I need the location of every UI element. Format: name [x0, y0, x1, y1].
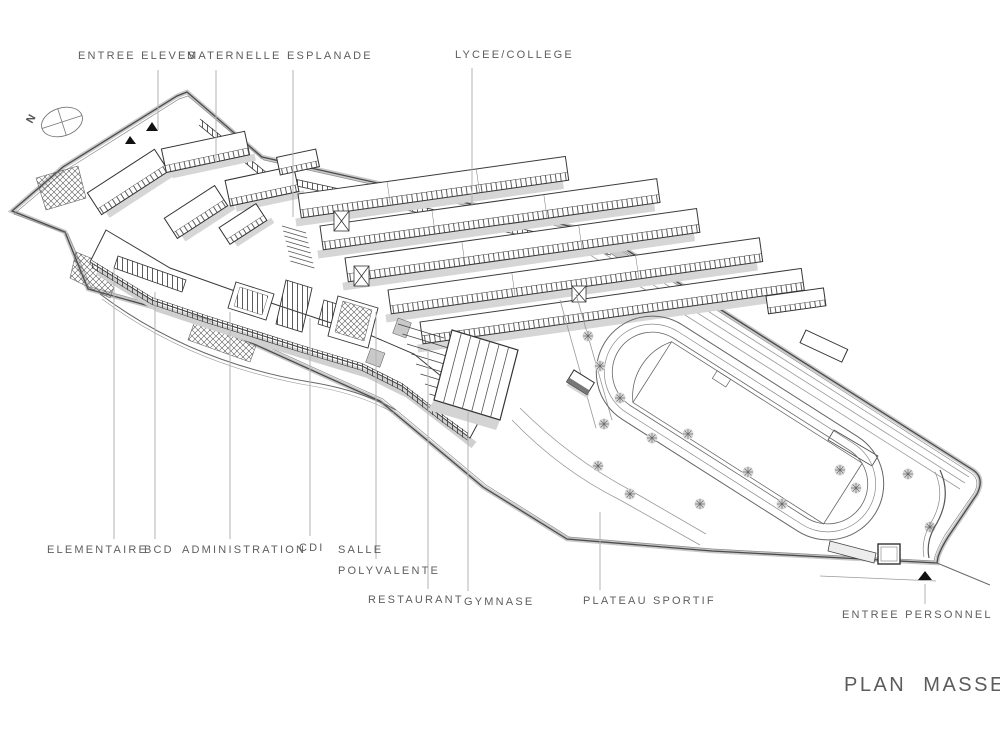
- esplanade-steps: [282, 226, 314, 268]
- staff-entrance-arrow-icon: [918, 571, 932, 580]
- label-elementaire: ELEMENTAIRE: [47, 544, 148, 556]
- tree-icons: [583, 331, 936, 533]
- north-compass-icon: N: [24, 102, 86, 142]
- track-building: [565, 370, 596, 398]
- running-track: [575, 295, 905, 561]
- compass-north-letter: N: [24, 113, 38, 126]
- student-entrance-arrow-icon: [125, 136, 136, 144]
- label-salle-polyvalente-line1: SALLE: [338, 544, 383, 556]
- page-title: PLAN MASSE: [844, 674, 1000, 697]
- label-salle-polyvalente-line2: POLYVALENTE: [338, 565, 440, 577]
- label-gymnase: GYMNASE: [464, 596, 534, 608]
- site-plan-drawing: N: [0, 0, 1000, 736]
- plateau-sportif-area: [512, 294, 905, 561]
- label-esplanade: ESPLANADE: [287, 50, 373, 62]
- label-bcd: BCD: [144, 544, 174, 556]
- plan-masse-sheet: N ENTREE ELEVES MATERNELLE ESPLANADE LYC…: [0, 0, 1000, 736]
- personnel-entrance-area: [828, 470, 945, 564]
- label-administration: ADMINISTRATION: [182, 544, 306, 556]
- label-entree-eleves: ENTREE ELEVES: [78, 50, 197, 62]
- label-entree-personnel: ENTREE PERSONNEL: [842, 609, 993, 621]
- label-cdi: CDI: [299, 542, 325, 554]
- label-plateau-sportif: PLATEAU SPORTIF: [583, 595, 716, 607]
- student-entrance-arrow-icon: [146, 122, 158, 131]
- label-maternelle: MATERNELLE: [187, 50, 282, 62]
- label-lycee-college: LYCEE/COLLEGE: [455, 49, 574, 61]
- label-restaurant: RESTAURANT: [368, 594, 464, 606]
